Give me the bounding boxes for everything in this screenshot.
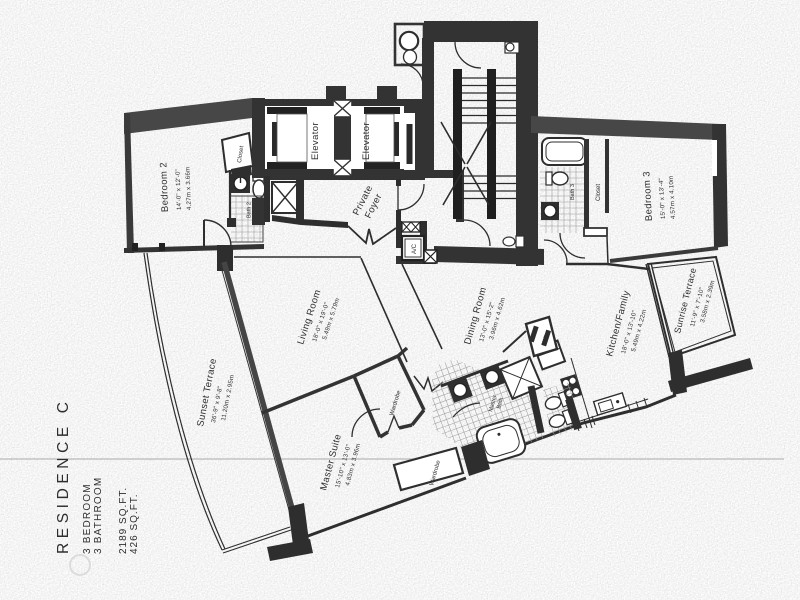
svg-text:3 BEDROOM: 3 BEDROOM	[82, 483, 93, 554]
svg-text:Bath 2: Bath 2	[247, 202, 253, 218]
svg-text:Elevator: Elevator	[361, 122, 372, 160]
svg-text:Elevator: Elevator	[310, 122, 321, 160]
svg-text:14'-0" x 12'-0": 14'-0" x 12'-0"	[175, 169, 183, 210]
svg-text:Closet: Closet	[596, 184, 602, 201]
svg-text:Bedroom 2: Bedroom 2	[158, 162, 171, 212]
svg-text:A/C: A/C	[412, 243, 418, 254]
svg-text:Bath 3: Bath 3	[570, 184, 576, 200]
svg-text:2189 SQ.FT.: 2189 SQ.FT.	[118, 487, 129, 554]
svg-text:426 SQ.FT.: 426 SQ.FT.	[129, 493, 140, 554]
svg-text:3 BATHROOM: 3 BATHROOM	[93, 477, 104, 554]
svg-text:RESIDENCE C: RESIDENCE C	[55, 397, 72, 554]
